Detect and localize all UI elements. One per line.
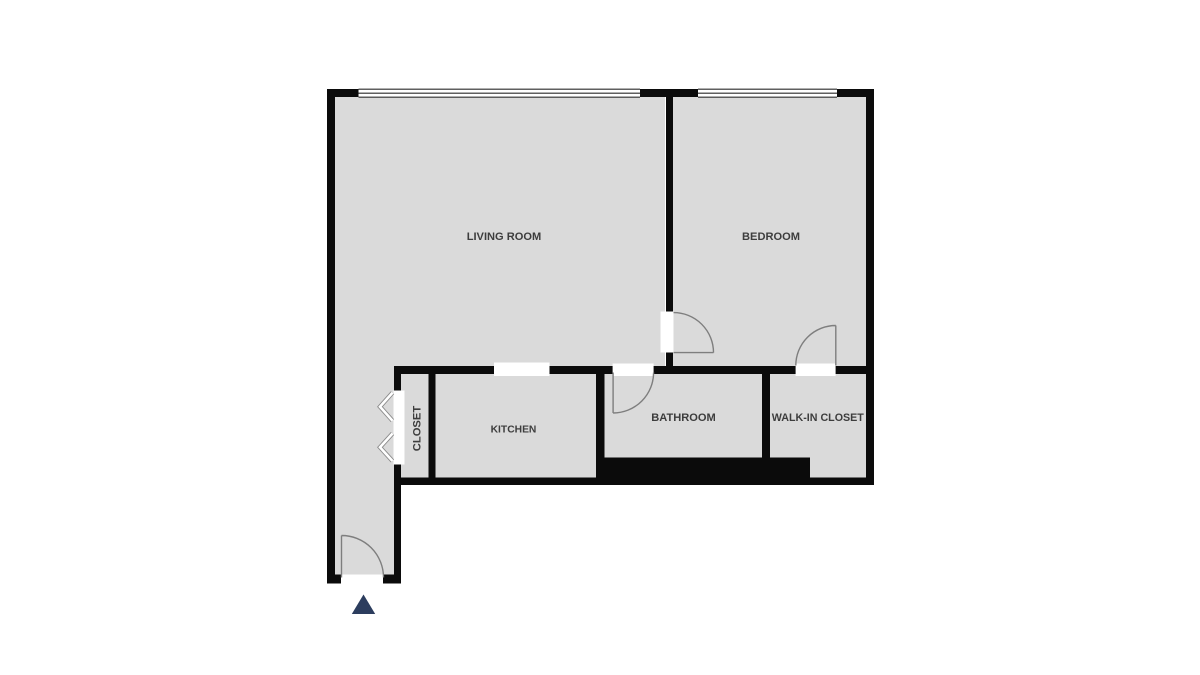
svg-text:LIVING ROOM: LIVING ROOM xyxy=(467,231,542,243)
svg-text:CLOSET: CLOSET xyxy=(412,406,424,452)
svg-text:BATHROOM: BATHROOM xyxy=(651,412,716,424)
svg-text:BEDROOM: BEDROOM xyxy=(742,231,800,243)
svg-text:KITCHEN: KITCHEN xyxy=(491,424,537,435)
svg-text:WALK-IN CLOSET: WALK-IN CLOSET xyxy=(772,412,864,424)
